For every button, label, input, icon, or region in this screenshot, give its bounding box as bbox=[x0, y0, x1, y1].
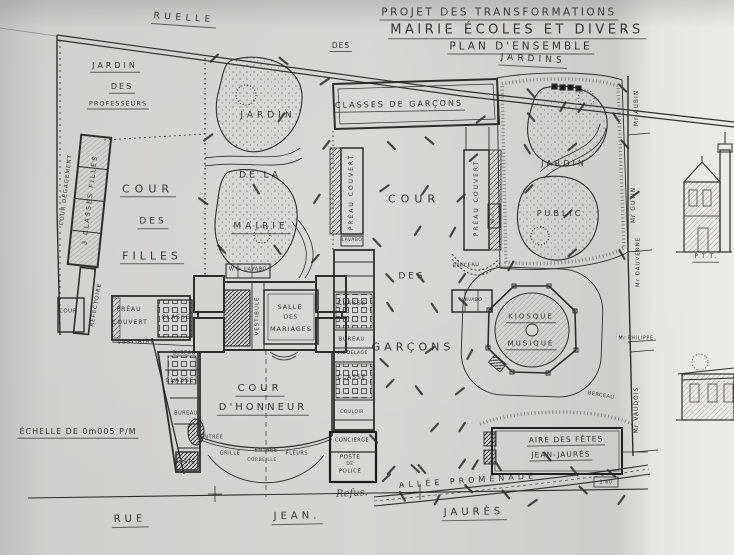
mairie-building bbox=[194, 264, 346, 360]
lavabo-ouest: LAVABO bbox=[342, 239, 363, 244]
title-line3: PLAN D'ENSEMBLE bbox=[447, 42, 594, 55]
cour-des-filles-line3: FILLES bbox=[120, 250, 184, 264]
jardin-public-line2: PUBLIC bbox=[537, 210, 584, 218]
wc-lavabo: W.C. LAVABO bbox=[229, 268, 267, 273]
preau-filles-line2: COUVERT bbox=[112, 320, 148, 326]
preau-filles-line1: PRÉAU bbox=[116, 307, 141, 313]
plan-photograph: PROJET DES TRANSFORMATIONS MAIRIE ÉCOLES… bbox=[0, 0, 734, 555]
street-rue: RUE bbox=[112, 514, 149, 527]
couloir: COULOIR bbox=[340, 411, 364, 416]
jardin-professeurs-line3: PROFESSEURS bbox=[87, 101, 149, 110]
cour-garcons-line1: COUR bbox=[388, 194, 440, 205]
jardin-mairie-line1: JARDIN bbox=[240, 112, 295, 121]
petite-cour: COUR bbox=[59, 309, 77, 315]
facade-elevation-sketch bbox=[676, 354, 734, 420]
dim-1-60: 1·60 bbox=[599, 481, 612, 486]
entree-centre: ENTRÉE bbox=[255, 449, 278, 454]
jardin-public-line1: JARDIN bbox=[541, 160, 587, 168]
concierge: CONCIERGE bbox=[335, 439, 369, 444]
salle-mariages-line3: MARIAGES bbox=[270, 326, 312, 333]
poste-police-line3: POLICE bbox=[339, 469, 362, 475]
owner-gutin: Mr GUTIN bbox=[631, 187, 637, 224]
ptt-label: P.T.T. bbox=[692, 254, 719, 263]
handwritten-note: Refus. bbox=[336, 488, 368, 500]
bureau-honneur-nord: BUREAU bbox=[173, 353, 196, 358]
cour-honneur-line2: D'HONNEUR bbox=[217, 403, 309, 416]
bureau-centre: BUREAU bbox=[339, 338, 366, 343]
owner-dauverne: Mr DAUVERNE bbox=[636, 237, 642, 287]
aire-fetes-line2: JEAN-JAURÈS bbox=[529, 450, 592, 461]
aire-fetes-line1: AIRE DES FÊTES bbox=[527, 435, 606, 446]
jardin-professeurs-line1: JARDIN bbox=[90, 62, 140, 73]
poste-police-line1: POSTE bbox=[340, 455, 360, 461]
scale-note: ÉCHELLE DE 0m005 P/M bbox=[17, 428, 138, 439]
owner-vaudois: Mr VAUDOIS bbox=[634, 387, 640, 434]
street-jaures: JAURÈS bbox=[442, 507, 507, 521]
street-jean: JEAN. bbox=[272, 511, 323, 524]
preau-couvert-ouest: PRÉAU COUVERT bbox=[349, 154, 355, 231]
jardin-mairie-planting bbox=[205, 57, 313, 278]
modelage: MODELAGE bbox=[338, 352, 368, 357]
grille: GRILLE bbox=[220, 452, 241, 457]
poste-police-line2: DE bbox=[346, 463, 353, 468]
cour-honneur-line1: COUR bbox=[235, 384, 284, 397]
title-line1: PROJET DES TRANSFORMATIONS bbox=[379, 8, 618, 21]
classe-honneur-ouest: CLASSE bbox=[165, 378, 194, 384]
cour-garcons-line3: GARÇONS bbox=[372, 342, 455, 353]
corbeille: CORBEILLE bbox=[247, 459, 276, 464]
cour-des-filles-line2: DES bbox=[137, 217, 168, 229]
classe-centre-sud: CLASSE bbox=[337, 375, 366, 381]
jardin-mairie-line2: DE LA bbox=[239, 172, 281, 181]
classe-centre-nord: CLASSE bbox=[337, 301, 366, 307]
preau-couvert-est: PRÉAU COUVERT bbox=[474, 160, 480, 237]
bureau-honneur-sud: BUREAU bbox=[174, 412, 198, 417]
salle-mariages-line1: SALLE bbox=[277, 304, 302, 311]
owner-aubin: Mr AUBIN bbox=[634, 90, 640, 126]
poste-sud-ouest: POSTE bbox=[175, 460, 195, 466]
owner-philippe: Mr PHILIPPE bbox=[618, 337, 653, 342]
kiosque-line1: KIOSQUE bbox=[506, 313, 556, 323]
cour-honneur-enclosure bbox=[158, 350, 332, 497]
title-prefix: DES bbox=[330, 42, 352, 52]
title-line2: MAIRIE ÉCOLES ET DIVERS bbox=[388, 23, 646, 39]
fleurs: FLEURS bbox=[286, 452, 308, 457]
wc-est: W.C. bbox=[492, 209, 497, 223]
classe-filles-sud: CLASSE bbox=[161, 315, 190, 321]
kiosque-line2: MUSIQUE bbox=[506, 340, 557, 350]
salle-mariages-line2: DES bbox=[284, 315, 298, 321]
lavabo-est: LAVABO bbox=[462, 299, 483, 304]
entree-ouest: ENTRÉE bbox=[201, 436, 224, 441]
cour-des-filles-line1: COUR bbox=[120, 183, 176, 197]
music-kiosk bbox=[460, 266, 604, 399]
cour-garcons-line2: DES bbox=[398, 273, 425, 282]
ptt-elevation-sketch bbox=[676, 132, 732, 252]
jardin-professeurs-line2: DES bbox=[109, 83, 135, 94]
jardin-mairie-line3: MAIRIE bbox=[231, 222, 290, 234]
vestibule: VESTIBULE bbox=[255, 296, 261, 335]
